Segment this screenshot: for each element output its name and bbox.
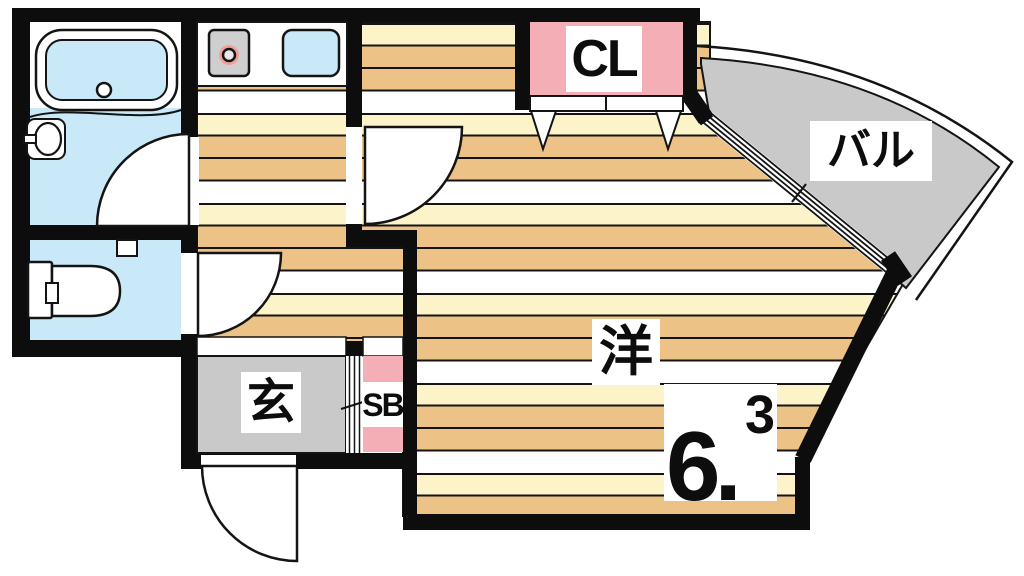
entrance-door-arc (202, 466, 297, 561)
stove-icon (209, 30, 249, 76)
room-size-sup: 3 (745, 388, 775, 442)
room-size-main: 6. (666, 417, 736, 515)
kitchen-sink-icon (283, 30, 339, 76)
toilet-window (117, 240, 137, 256)
entrance-label: 玄 (241, 372, 301, 433)
washbasin-icon (24, 119, 65, 159)
shoebox-label: SB (362, 382, 403, 427)
floor-plan: CL バル 玄 SB 洋 6. 3 (0, 0, 1024, 576)
room-type-label: 洋 (592, 319, 660, 385)
entrance-step (197, 337, 346, 356)
toilet-icon (28, 262, 120, 318)
balcony-label: バル (810, 121, 932, 181)
room-size-label: 6. 3 (664, 384, 777, 501)
floor-plan-drawing (0, 0, 1024, 576)
toilet-room (28, 240, 181, 340)
bathtub-icon (36, 30, 177, 110)
bathroom (24, 22, 189, 226)
closet-label: CL (566, 26, 642, 92)
kitchen-counter (197, 22, 347, 86)
shoebox-top (363, 337, 403, 356)
